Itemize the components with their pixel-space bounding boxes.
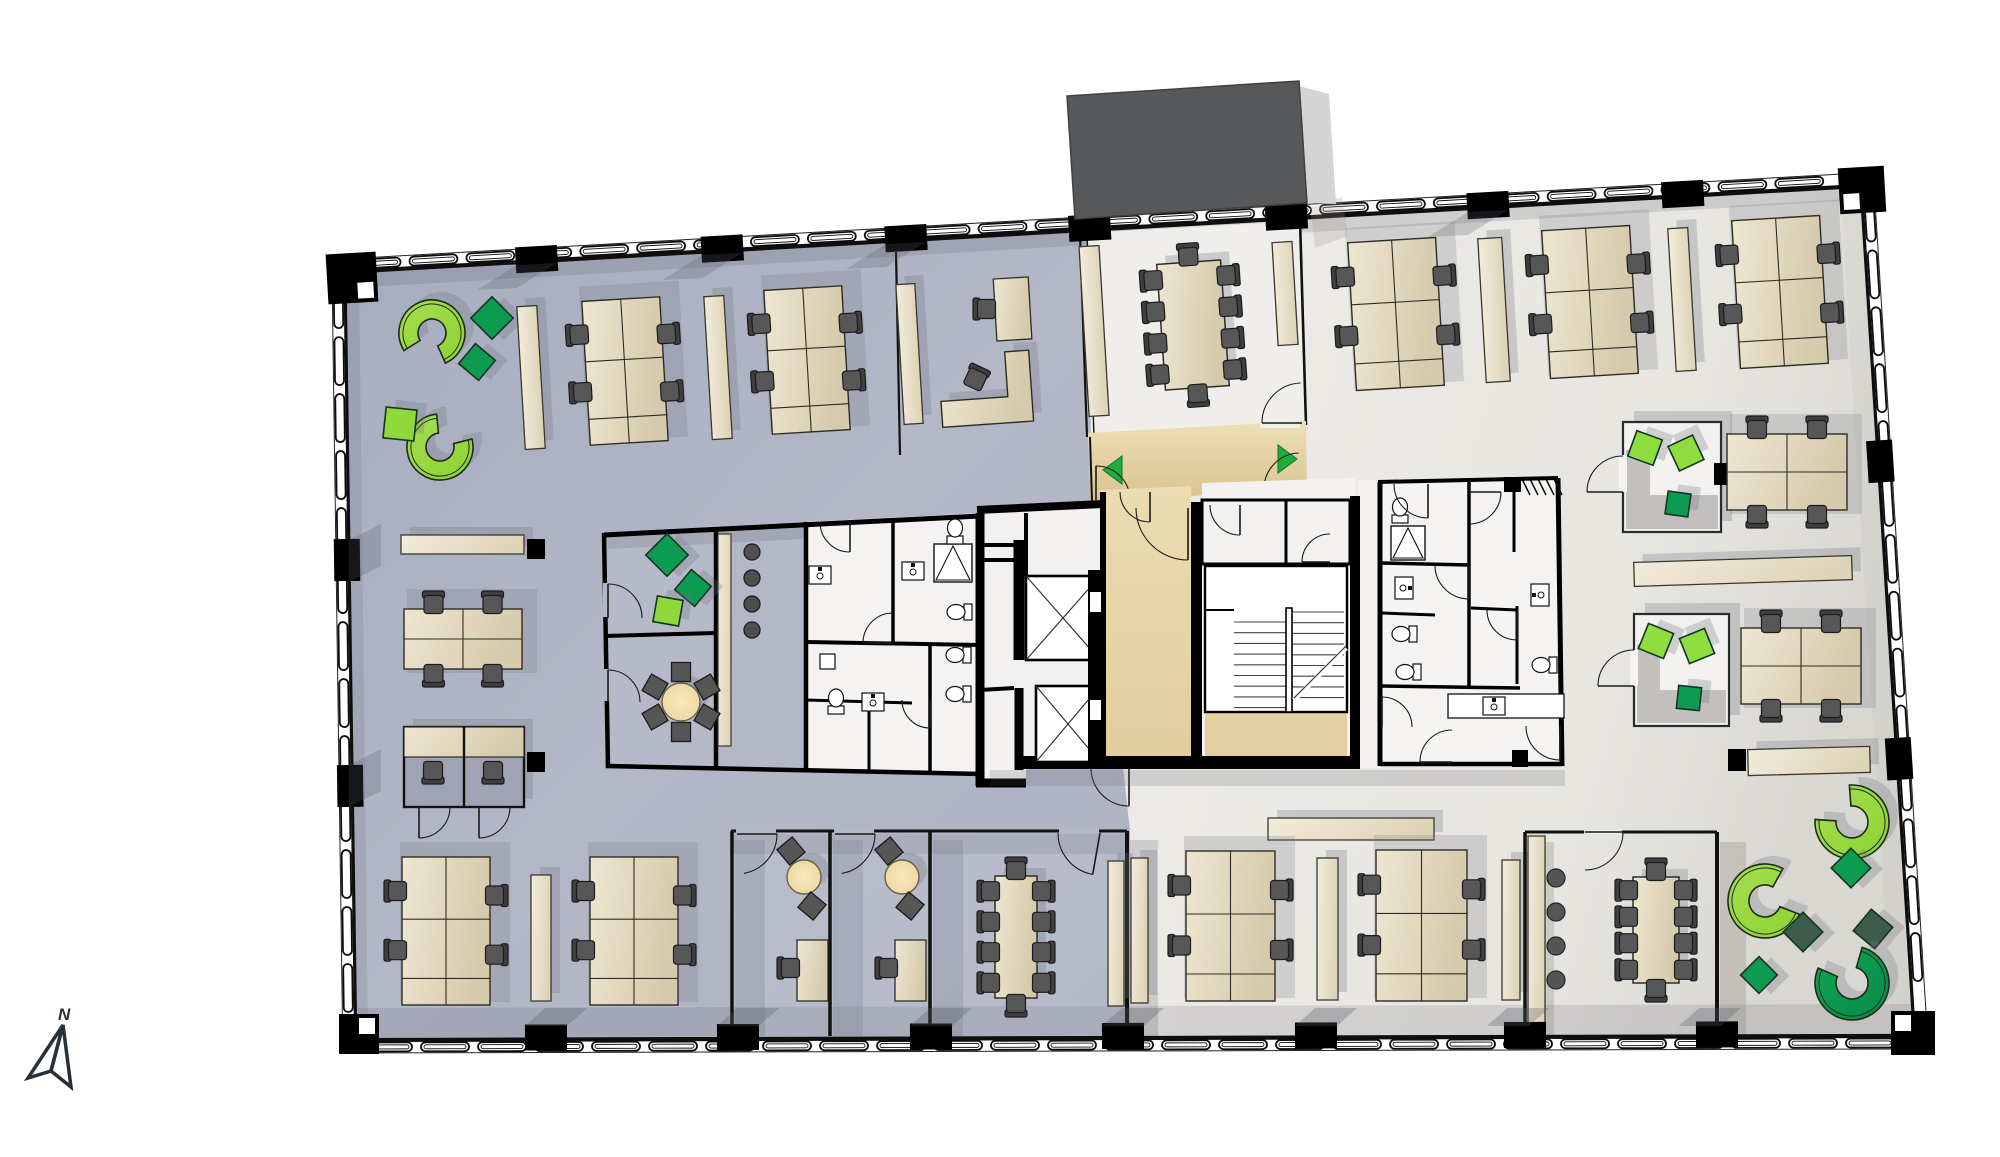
svg-text:N: N: [58, 1005, 71, 1024]
